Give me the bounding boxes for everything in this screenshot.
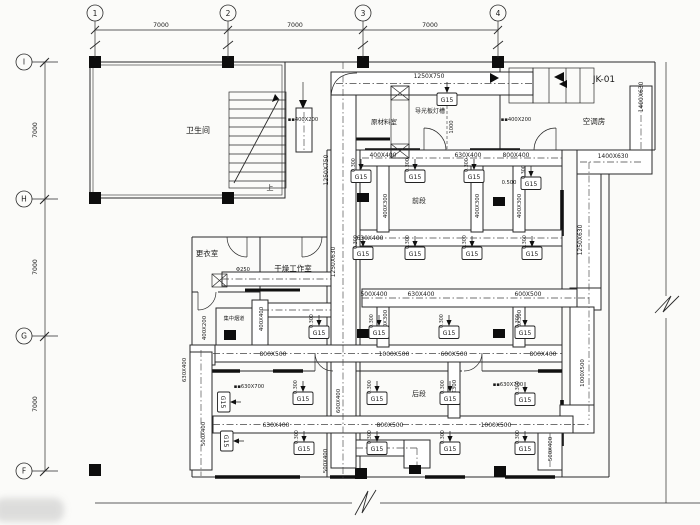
duct-size-label: 1400X630 [598, 153, 629, 160]
floor-plan-drawing: JK-01 上 1234700070007000IHGF700070007000… [0, 0, 700, 525]
duct-size-label: 600X400 [336, 388, 342, 413]
duct-size-label: 1000X500 [379, 351, 410, 358]
elevation-label: 0.300 [439, 314, 445, 328]
room-label: 前段 [412, 196, 426, 205]
elevation-label: 0.300 [293, 380, 299, 394]
elevation-label: 0.300 [515, 314, 521, 328]
grid-bubble-label: 4 [496, 9, 501, 18]
duct-size-label: 800X500 [259, 351, 286, 358]
stairs [229, 92, 286, 188]
diffuser-tag: G15 [357, 251, 370, 258]
dimension-label: 7000 [287, 22, 303, 29]
diffuser-tag: G15 [519, 446, 532, 453]
elevation-label: 0.300 [522, 235, 528, 249]
duct-size-label: 1000 [449, 120, 455, 133]
watermark [0, 498, 64, 522]
elevation-label: 0.300 [367, 430, 373, 444]
duct-size-label: 800X400 [529, 351, 556, 358]
duct-size-label: 400X400 [369, 152, 396, 159]
diffuser-tag: G15 [444, 446, 457, 453]
diffuser-tag: G15 [409, 174, 422, 181]
grid-bubble-label: H [21, 195, 27, 204]
diffuser: G150.300 [367, 430, 387, 454]
diffuser-tag: G15 [355, 174, 368, 181]
diffuser: G15 [218, 392, 242, 412]
room-label: 卫生间 [186, 125, 210, 135]
duct-size-label: 400X200 [202, 315, 208, 340]
diffuser-tag: G15 [371, 396, 384, 403]
duct-size-label: ▪▪400X200 [501, 117, 531, 123]
elevation-label: 0.300 [440, 430, 446, 444]
stair-arrow [299, 82, 307, 109]
duct-size-label: 630X400 [182, 357, 188, 382]
dimension-label: 7000 [32, 122, 39, 138]
elevation-label: 0.300 [405, 235, 411, 249]
duct-size-label: 500X400 [548, 436, 554, 461]
diffuser-tag: G15 [371, 446, 384, 453]
duct-size-label: 1250X750 [323, 154, 330, 185]
duct-size-label: 1250X630 [577, 224, 584, 255]
dimension-label: 7000 [32, 259, 39, 275]
duct-size-label: 1400X630 [638, 81, 645, 112]
plan-svg: JK-01 上 1234700070007000IHGF700070007000… [0, 0, 700, 525]
room-label: 干燥工作室 [274, 263, 312, 273]
duct-size-label: 630X400 [407, 291, 434, 298]
room-label: 更衣室 [196, 248, 219, 258]
diffuser: G150.300 [367, 380, 387, 404]
diffuser-tag: G15 [444, 396, 457, 403]
duct-size-label: ▪▪400X200 [288, 117, 318, 123]
diffuser-tag: G15 [468, 174, 481, 181]
dimension-lines [45, 30, 498, 471]
elevation-label: 0.300 [405, 158, 411, 172]
duct-size-label: 400X400 [259, 306, 265, 331]
diffuser: G150.300 [293, 380, 313, 404]
room-label: 后段 [412, 389, 426, 398]
room-label: 空调房 [583, 116, 606, 126]
dimension-label: 7000 [153, 22, 169, 29]
diffuser-tag: G15 [526, 251, 539, 258]
elevation-label: 0.300 [462, 235, 468, 249]
elevation-label: 0.300 [351, 158, 357, 172]
duct-size-label: 500X400 [360, 291, 387, 298]
diffuser: G150.300 [515, 430, 535, 454]
elevation-label: 0.300 [515, 430, 521, 444]
room-label: 原材料室 [371, 117, 398, 126]
ahu-tag: JK-01 [592, 75, 615, 85]
elevation-label: 0.300 [464, 158, 470, 172]
diffuser-tag: G15 [519, 330, 532, 337]
duct-size-label: 1000X500 [481, 422, 512, 429]
diffuser: G15 [221, 431, 245, 451]
diffuser-tag: G15 [373, 330, 386, 337]
duct-size-label: 400X300 [517, 193, 523, 218]
diffuser-tag: G15 [313, 330, 326, 337]
diffuser: G150.300 [440, 430, 460, 454]
duct-size-label: Φ250 [236, 267, 250, 273]
duct-size-label: 1250X750 [414, 73, 445, 80]
duct-size-label: 600X500 [514, 291, 541, 298]
elevation-label: 0.300 [367, 380, 373, 394]
diffuser-tag: G15 [298, 446, 311, 453]
duct-size-label: 630X400 [356, 235, 383, 242]
diffuser-tag: G15 [466, 251, 479, 258]
diffuser-tag: G15 [443, 330, 456, 337]
duct-size-label: 800X400 [502, 152, 529, 159]
duct-size-label: 400X300 [475, 193, 481, 218]
duct-size-label: 500X400 [323, 448, 329, 473]
room-label: 导光板灯槽 [415, 107, 445, 115]
dimension-label: 7000 [32, 396, 39, 412]
elevation-label: 0.300 [440, 380, 446, 394]
elevation-label: 0.300 [521, 165, 527, 179]
diffuser-tag: G15 [219, 396, 226, 409]
duct-size-label: 630X400 [454, 152, 481, 159]
room-label: 集中烟道 [224, 314, 245, 322]
diffuser-tag: G15 [297, 396, 310, 403]
duct-size-label: 600X500 [440, 351, 467, 358]
elevation-label: 0.300 [353, 235, 359, 249]
elevation-label: 0.300 [515, 381, 521, 395]
grid-bubble-label: 1 [93, 9, 98, 18]
diffuser: G150.300 [294, 430, 314, 454]
elevation-label: 0.300 [294, 430, 300, 444]
diffuser-tag: G15 [519, 397, 532, 404]
elevation-label: 0.300 [309, 314, 315, 328]
dimension-label: 7000 [422, 22, 438, 29]
duct-size-label: 800X500 [376, 422, 403, 429]
ducts [190, 72, 652, 470]
diffuser: G150.300 [309, 314, 329, 338]
duct-size-label: 1000X500 [580, 359, 586, 387]
diffuser: G150.300 [515, 314, 535, 338]
grid-bubble-label: G [21, 332, 27, 341]
grid-bubble-label: I [23, 58, 25, 67]
elevation-label: 0.300 [369, 314, 375, 328]
duct-size-label: 1250X630 [330, 246, 337, 277]
grid-bubble-label: 3 [361, 9, 366, 18]
duct-size-label: 500X400 [201, 421, 207, 446]
duct-size-label: 0.500 [502, 180, 517, 186]
duct-size-label: 400X300 [383, 193, 389, 218]
duct-size-label: 630X400 [262, 422, 289, 429]
diffuser-tag: G15 [525, 181, 538, 188]
stair-up-label: 上 [267, 183, 274, 192]
diffuser: G150.300 [521, 165, 541, 189]
diffuser-tag: G15 [222, 435, 229, 448]
diffuser-tag: G15 [441, 97, 454, 104]
grid-bubble-label: 2 [226, 9, 231, 18]
diffuser-tag: G15 [409, 251, 422, 258]
diffuser: G150.300 [515, 381, 535, 405]
diffuser: G150.300 [439, 314, 459, 338]
duct-size-label: ▪▪630X700 [234, 384, 264, 390]
grid-bubble-label: F [22, 467, 26, 476]
